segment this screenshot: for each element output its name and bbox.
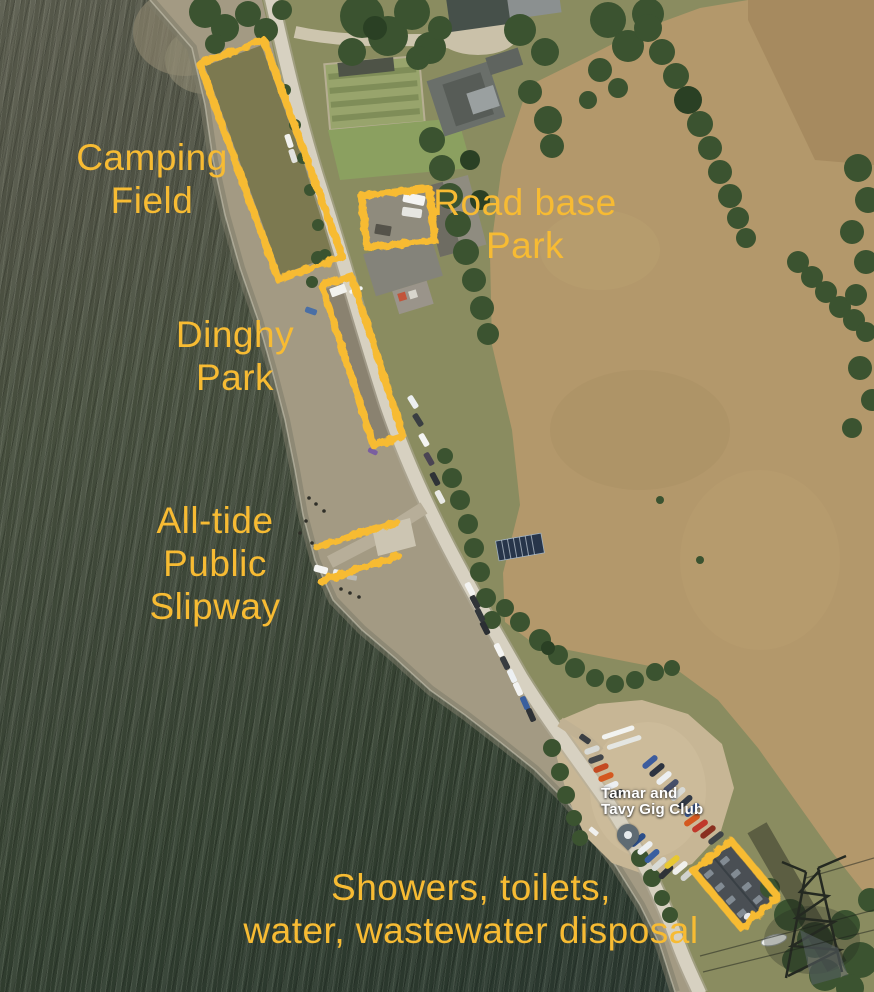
map-canvas: Camping Field Road base Park Dinghy Park…: [0, 0, 874, 992]
annotation-line: All-tide: [95, 499, 335, 542]
annotation-dinghy-park: Dinghy Park: [115, 313, 355, 399]
annotation-line: Showers, toilets,: [151, 866, 791, 909]
annotation-camping-field: Camping Field: [32, 136, 272, 222]
annotation-line: Dinghy: [115, 313, 355, 356]
annotation-line: Slipway: [95, 585, 335, 628]
annotation-line: Road base: [405, 181, 645, 224]
annotation-line: Camping: [32, 136, 272, 179]
annotation-showers: Showers, toilets, water, wastewater disp…: [151, 866, 791, 952]
annotation-line: Field: [32, 179, 272, 222]
annotation-road-base-park: Road base Park: [405, 181, 645, 267]
poi-label-line: Tavy Gig Club: [601, 802, 703, 818]
gig-club-map-label: Tamar and Tavy Gig Club: [601, 786, 703, 817]
poi-label-line: Tamar and: [601, 786, 703, 802]
annotation-all-tide-slipway: All-tide Public Slipway: [95, 499, 335, 628]
annotation-line: water, wastewater disposal: [151, 909, 791, 952]
annotation-line: Park: [405, 224, 645, 267]
annotation-line: Public: [95, 542, 335, 585]
annotation-line: Park: [115, 356, 355, 399]
